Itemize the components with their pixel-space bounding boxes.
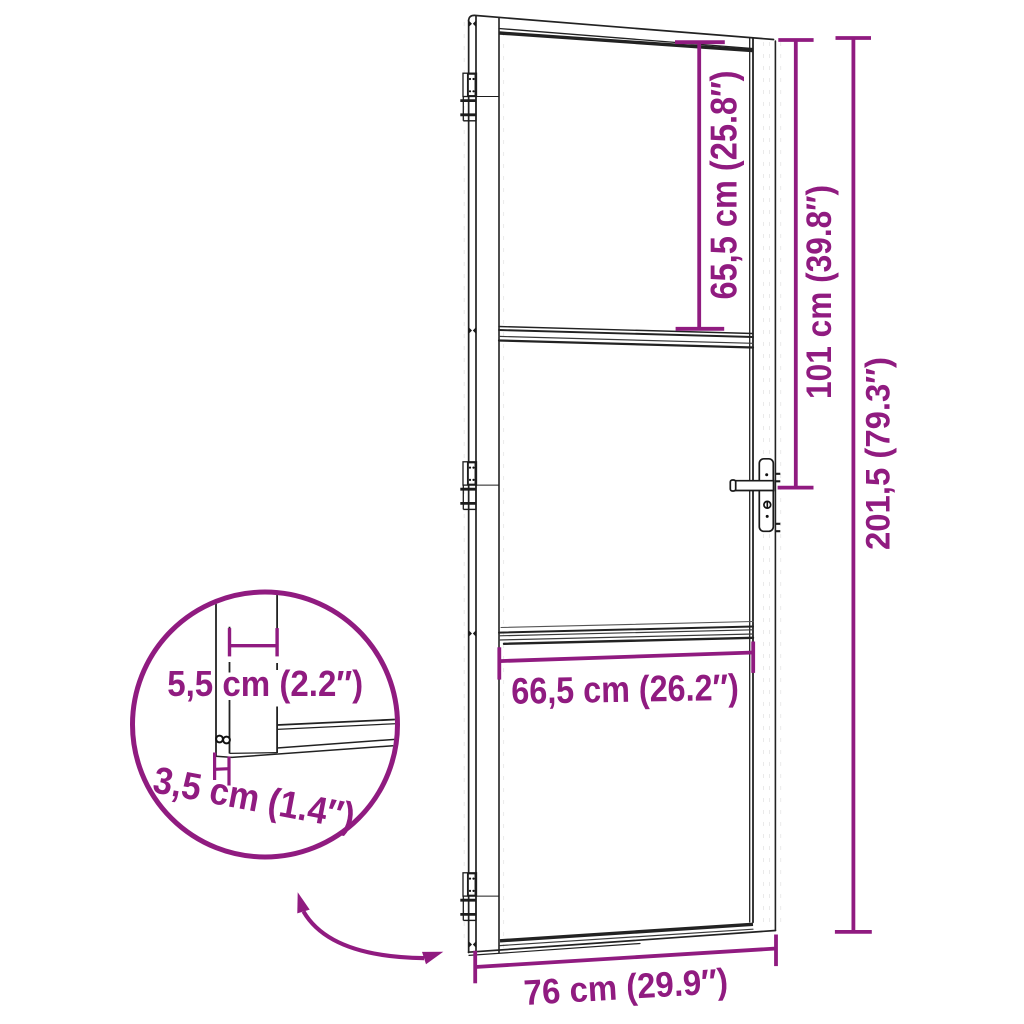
svg-text:5,5 cm (2.2″): 5,5 cm (2.2″) [167,663,363,704]
svg-text:101 cm (39.8″): 101 cm (39.8″) [800,185,839,399]
svg-text:65,5 cm (25.8″): 65,5 cm (25.8″) [704,71,745,300]
svg-text:201,5 (79.3″): 201,5 (79.3″) [860,357,898,550]
svg-text:66,5 cm (26.2″): 66,5 cm (26.2″) [511,667,739,712]
